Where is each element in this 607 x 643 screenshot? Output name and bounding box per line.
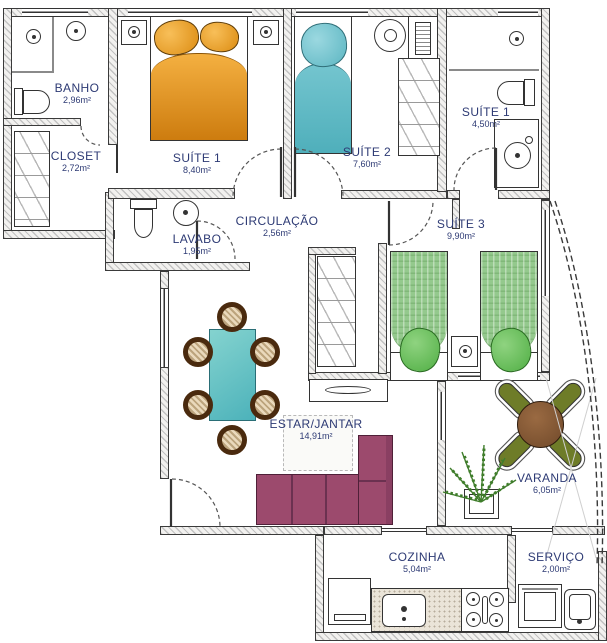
room-area: 4,50m² — [462, 119, 510, 129]
room-area: 14,91m² — [269, 431, 362, 441]
washing-machine — [518, 584, 562, 628]
room-name: LAVABO — [173, 233, 222, 246]
double-bed — [150, 16, 248, 141]
sideboard — [309, 379, 388, 402]
room-area: 8,40m² — [173, 165, 221, 175]
room-area: 2,72m² — [51, 163, 101, 173]
wall-segment — [105, 262, 250, 271]
bed-blanket — [151, 53, 247, 140]
room-name: CLOSET — [51, 150, 101, 163]
dining-chair — [250, 337, 280, 367]
room-label-varanda: VARANDA 6,05m² — [517, 472, 577, 496]
desk-chair-icon — [374, 19, 406, 52]
window — [437, 392, 446, 440]
dining-chair — [217, 425, 247, 455]
faucet-icon — [525, 136, 533, 144]
burner-icon — [466, 612, 481, 627]
wall-segment — [378, 243, 387, 374]
door-arc-suite1 — [233, 149, 281, 197]
room-area: 7,60m² — [343, 159, 391, 169]
floor-plan: BANHO 2,96m² CLOSET 2,72m² SUÍTE 1 8,40m… — [0, 0, 607, 643]
wall-segment — [160, 367, 169, 479]
wall-segment — [308, 247, 316, 374]
shower-head-icon — [509, 31, 524, 46]
sideboard-bowl-icon — [325, 386, 371, 394]
wall-segment — [498, 190, 550, 199]
dining-chair — [183, 337, 213, 367]
wall-segment — [552, 526, 605, 535]
door-arc-suite3 — [389, 201, 433, 245]
suite3-wardrobe — [317, 256, 356, 367]
pass-through-counter — [381, 528, 426, 532]
window — [498, 8, 538, 17]
bed-blanket — [295, 63, 351, 153]
wall-segment — [283, 8, 292, 199]
toilet-tank-icon — [524, 79, 535, 106]
door-arc-entrance — [172, 479, 220, 527]
nightstand — [121, 20, 147, 45]
door-arc-bath — [454, 148, 496, 190]
plant-pot — [464, 489, 499, 519]
bed-pillow — [299, 21, 349, 69]
wall-segment — [108, 8, 118, 145]
window — [22, 8, 88, 17]
single-bed — [390, 251, 448, 381]
window — [160, 289, 169, 367]
round-table — [517, 401, 564, 448]
window — [541, 210, 550, 296]
closet-door-frame — [116, 145, 118, 173]
wall-segment — [426, 526, 512, 535]
wall-segment — [3, 118, 81, 126]
room-label-servico: SERVIÇO 2,00m² — [528, 551, 585, 575]
room-name: SUÍTE 1 — [462, 106, 510, 119]
shower-partition — [12, 71, 54, 73]
door-arc-suite2 — [295, 149, 343, 197]
computer-icon — [415, 22, 431, 55]
room-label-closet: CLOSET 2,72m² — [51, 150, 101, 174]
wall-segment — [308, 247, 356, 255]
burner-icon — [489, 613, 503, 627]
wall-segment — [541, 8, 550, 200]
nightstand — [253, 20, 279, 45]
dining-table — [209, 329, 256, 421]
wall-segment — [108, 188, 235, 199]
wall-segment — [447, 190, 460, 199]
single-bed — [294, 16, 352, 154]
shower-head-icon — [26, 29, 41, 44]
room-name: SUÍTE 2 — [343, 146, 391, 159]
toilet-bowl-icon — [497, 81, 524, 105]
bed-pillow — [198, 20, 240, 55]
room-label-cozinha: COZINHA 5,04m² — [389, 551, 446, 575]
room-label-circulacao: CIRCULAÇÃO 2,56m² — [236, 215, 319, 239]
nightstand — [451, 336, 478, 367]
room-name: SUÍTE 3 — [437, 218, 485, 231]
wall-segment — [3, 230, 115, 239]
suite2-wardrobe — [398, 58, 440, 156]
sink-icon — [173, 200, 199, 226]
dining-chair — [183, 390, 213, 420]
room-area: 5,04m² — [389, 564, 446, 574]
stove — [461, 588, 509, 632]
dining-chair — [250, 390, 280, 420]
door-arc-banho — [81, 126, 100, 145]
wall-segment — [315, 632, 607, 641]
dining-chair — [217, 302, 247, 332]
room-name: SUÍTE 1 — [173, 152, 221, 165]
burner-icon — [466, 592, 480, 606]
curved-glass — [555, 201, 603, 566]
sofa-chaise — [358, 435, 393, 525]
wall-segment — [105, 192, 114, 271]
toilet-bowl-icon — [23, 90, 50, 114]
laundry-tank — [564, 589, 596, 630]
wall-segment — [324, 526, 382, 535]
room-area: 2,00m² — [528, 564, 585, 574]
shower-partition — [449, 69, 539, 71]
single-bed — [480, 251, 538, 381]
room-name: COZINHA — [389, 551, 446, 564]
room-area: 2,96m² — [55, 95, 100, 105]
room-label-suite2: SUÍTE 2 7,60m² — [343, 146, 391, 170]
room-area: 2,56m² — [236, 228, 319, 238]
room-label-suite1-banheiro: SUÍTE 1 4,50m² — [462, 106, 510, 130]
desk — [408, 16, 438, 60]
room-label-banho: BANHO 2,96m² — [55, 82, 100, 106]
fridge — [328, 578, 371, 625]
sink-icon — [66, 21, 86, 41]
wall-segment — [598, 551, 607, 641]
room-name: BANHO — [55, 82, 100, 95]
wall-segment — [341, 190, 447, 199]
wall-segment — [160, 271, 169, 289]
shower-partition — [52, 17, 54, 73]
toilet-bowl-icon — [134, 209, 153, 238]
room-area: 1,95m² — [173, 246, 222, 256]
room-label-suite1: SUÍTE 1 8,40m² — [173, 152, 221, 176]
room-label-estar-jantar: ESTAR/JANTAR 14,91m² — [269, 418, 362, 442]
room-name: ESTAR/JANTAR — [269, 418, 362, 431]
burner-icon — [489, 592, 504, 607]
room-area: 6,05m² — [517, 485, 577, 495]
wall-segment — [315, 535, 324, 641]
room-area: 9,90m² — [437, 231, 485, 241]
toilet-tank-icon — [14, 88, 23, 115]
room-name: SERVIÇO — [528, 551, 585, 564]
wall-segment — [160, 526, 324, 535]
pass-through-counter — [511, 528, 552, 532]
bed-pillow — [152, 17, 201, 58]
room-label-lavabo: LAVABO 1,95m² — [173, 233, 222, 257]
toilet-tank-icon — [130, 199, 157, 209]
room-label-suite3: SUÍTE 3 9,90m² — [437, 218, 485, 242]
closet-wardrobe — [14, 131, 50, 227]
room-name: VARANDA — [517, 472, 577, 485]
kitchen-sink — [382, 594, 426, 627]
wall-segment — [8, 8, 550, 17]
room-name: CIRCULAÇÃO — [236, 215, 319, 228]
